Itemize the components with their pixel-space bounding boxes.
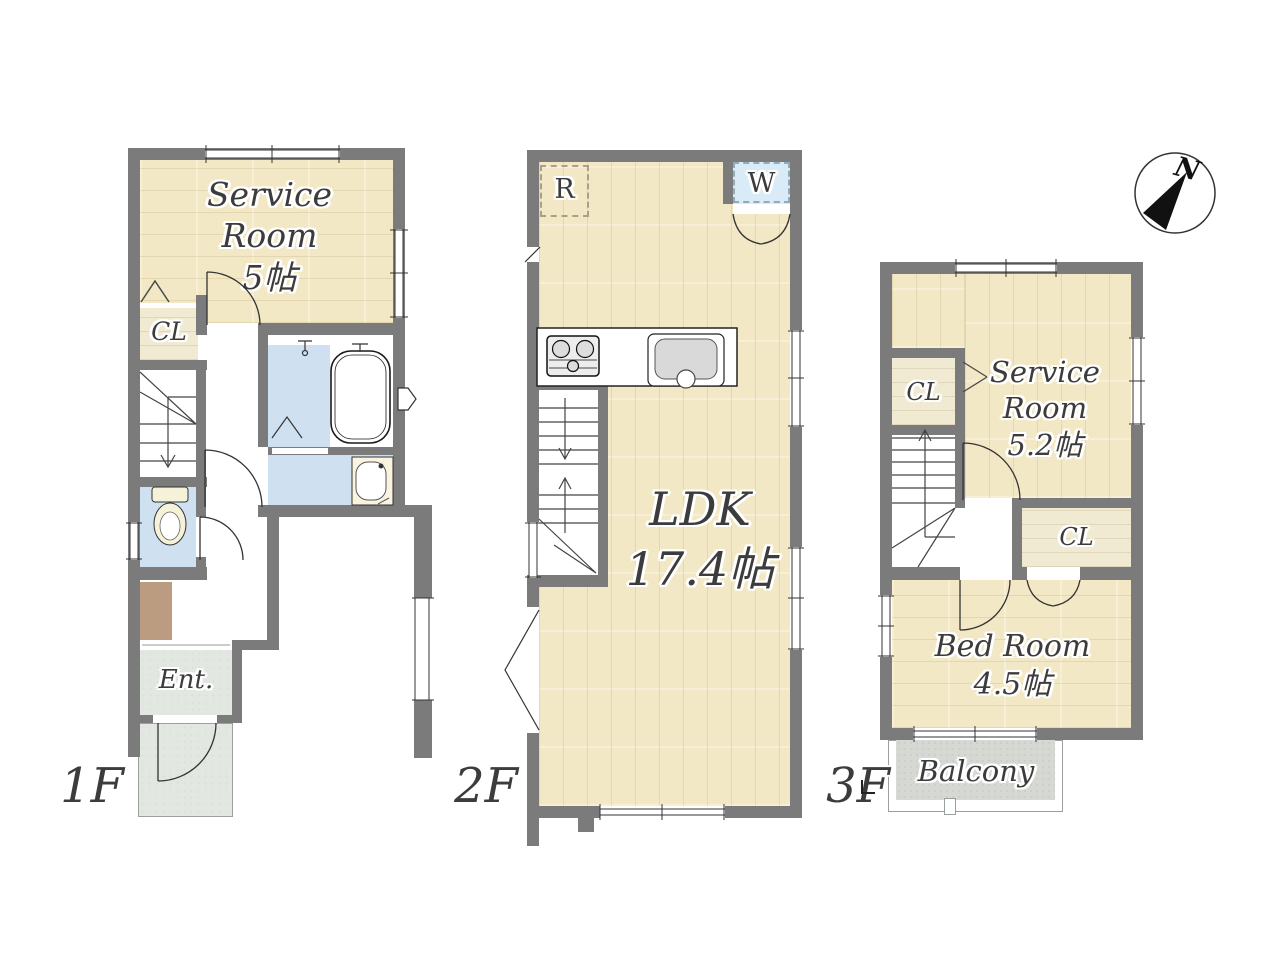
wall [258,335,268,447]
wall [723,150,733,204]
window [529,522,537,578]
wall [232,640,242,723]
window [955,264,1057,272]
room-name-line: LDK [555,480,845,540]
washer-lintel [733,204,790,214]
refrigerator-label: R [540,173,589,207]
wall [196,557,206,580]
room-name-line: Room [152,215,387,256]
wall [527,806,600,818]
wall [414,507,432,598]
window [130,522,138,560]
entrance-step [138,582,172,640]
room-size: 5.2帖 [950,427,1140,463]
wall [1012,508,1022,580]
stairs-3f [892,430,955,567]
wall [527,150,539,247]
room-name-line: Service [950,354,1140,390]
wall [527,150,802,162]
doorway-gap [140,640,232,650]
porch-floor [138,723,233,817]
window [792,330,800,427]
compass: N [1135,151,1215,233]
washroom-floor [268,455,393,505]
wall [880,728,913,740]
floor-plan-canvas: Service Room 5帖 CL Ent. 1F [0,0,1280,960]
wall [217,715,240,723]
wall [128,148,140,757]
compass-circle [1135,153,1215,233]
bathtub-area [330,345,393,447]
window [882,595,890,657]
floor-1f-label: 1F [52,756,132,816]
wall [267,517,279,650]
wall [196,360,206,517]
closet-3f-upper-label: CL [892,377,955,407]
room-name-line: Service [152,174,387,215]
wall [578,818,594,832]
wall [414,700,432,758]
door-gap [527,607,539,733]
wall [1131,425,1143,740]
wall [527,818,539,846]
wall [1131,262,1143,337]
ldk-label: LDK 17.4帖 [555,480,845,600]
window [600,808,725,816]
window [395,229,403,318]
washer-label: W [733,167,790,201]
wall [527,378,608,390]
wall [880,567,960,580]
wall [1080,567,1143,580]
service-room-3f-label: Service Room 5.2帖 [950,354,1140,463]
window [414,598,432,700]
doorway-gap [196,517,206,557]
service-room-1f-label: Service Room 5帖 [152,174,387,298]
bedroom-label: Bed Room 4.5帖 [900,628,1125,703]
balcony-stub [944,798,956,815]
wall [527,262,539,522]
floor-2f-label: 2F [446,756,526,816]
doorway-gap [207,323,258,335]
closet-1f-label: CL [140,316,198,347]
wall [258,505,432,517]
room-size: 5帖 [152,257,387,298]
room-size: 17.4帖 [555,540,845,600]
toilet-room-floor [140,487,198,567]
doorway-gap [960,567,1012,580]
floor-3f-label: 3F [818,756,898,816]
wall [725,806,802,818]
compass-needle [1143,172,1187,230]
window [913,730,1037,738]
balcony-label: Balcony [892,753,1060,789]
wall [790,150,802,330]
closet-3f-lower-label: CL [1022,522,1131,552]
doorway-gap [153,715,217,723]
window [205,150,340,158]
wall [1037,728,1143,740]
wall [128,477,207,487]
doorway-gap [1027,567,1080,580]
stairs-1f [140,372,196,467]
wall [1012,498,1143,508]
wall [790,650,802,818]
entrance-label: Ent. [140,664,232,697]
room-name-line: Room [950,390,1140,426]
doorway-gap [258,450,268,505]
sliding-door-gap [272,448,328,454]
wall [128,715,153,723]
wall [258,323,405,335]
vent-gap [529,247,537,262]
room-size: 4.5帖 [900,666,1125,704]
compass-north-label: N [1170,151,1204,188]
room-name-line: Bed Room [900,628,1125,666]
wall [727,328,737,386]
